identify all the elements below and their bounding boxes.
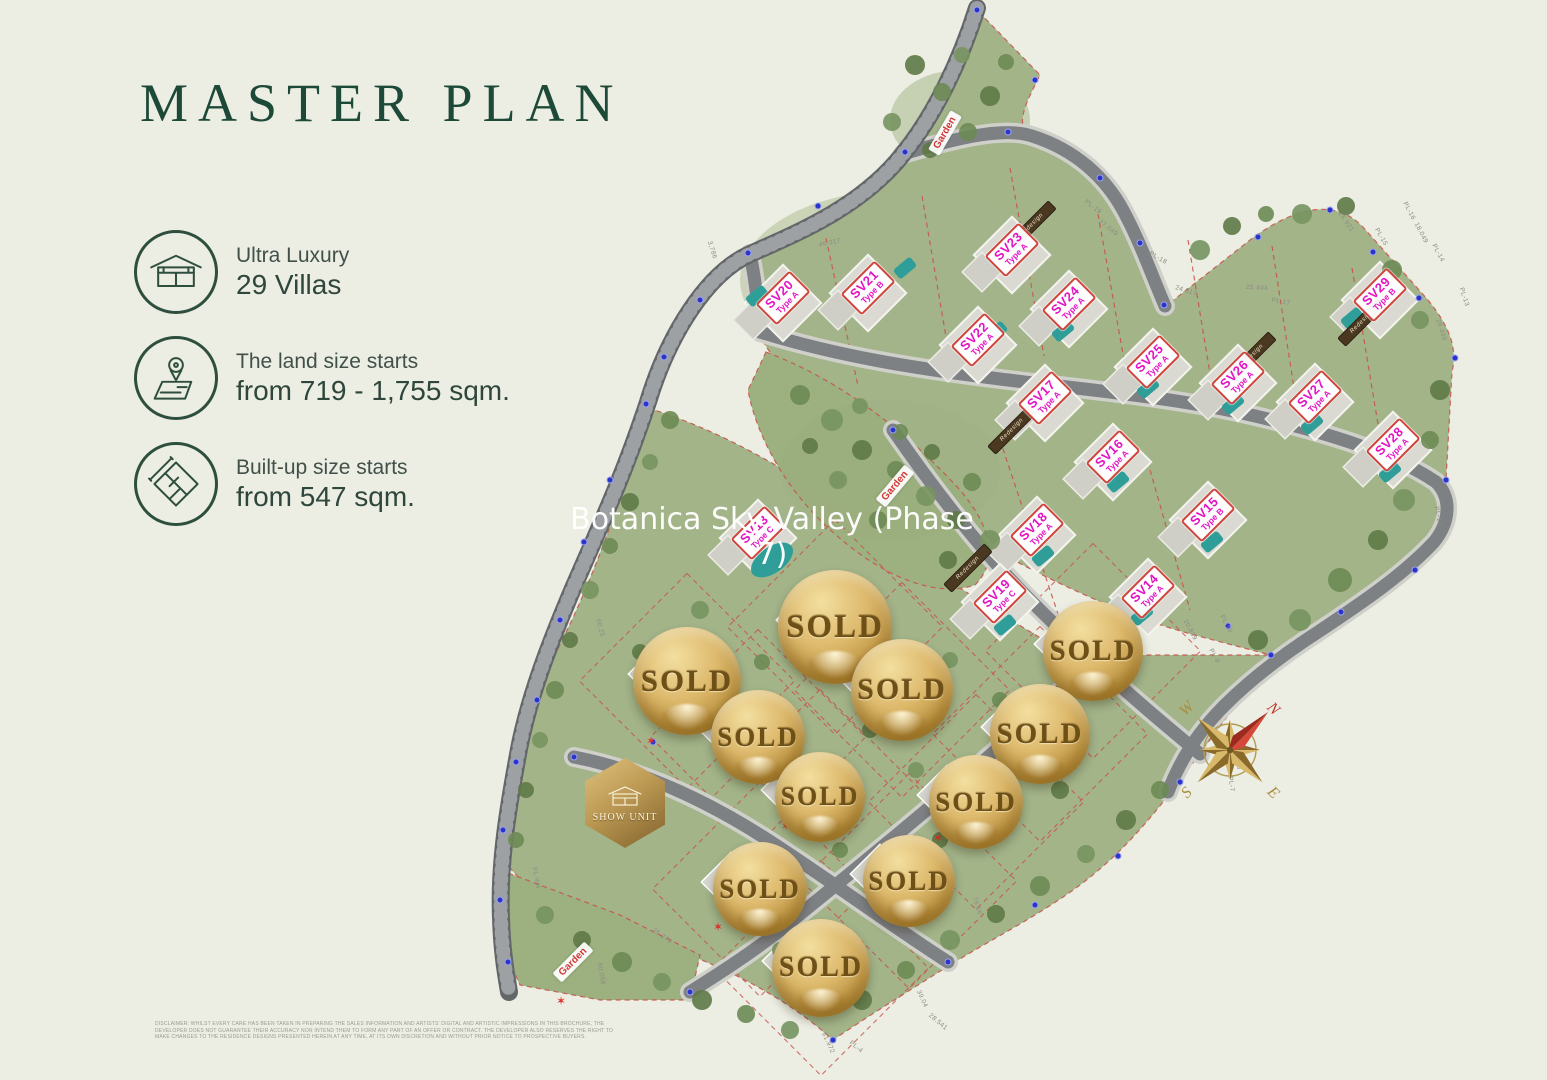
sold-label: SOLD: [779, 952, 863, 984]
survey-annotation: PL-9: [1207, 648, 1220, 665]
survey-annotation: 46.317: [818, 237, 841, 248]
sold-label: SOLD: [641, 663, 733, 699]
survey-annotation: 24.817: [1174, 284, 1197, 298]
survey-annotation: 3,786: [706, 240, 718, 260]
villa-label-sv15: SV15Type B: [1180, 487, 1235, 542]
survey-annotation: 28.541: [927, 1012, 949, 1032]
compass-label-e: E: [1263, 783, 1283, 803]
survey-annotation: PL-17: [1271, 297, 1291, 307]
survey-annotation: 39.04: [915, 989, 929, 1009]
villa-label-sv27: SV27Type A: [1287, 369, 1342, 424]
survey-annotation: 25.279: [651, 927, 673, 946]
sold-badge: SOLD: [713, 842, 807, 936]
sold-label: SOLD: [717, 722, 799, 753]
survey-annotation: PL-18: [1148, 250, 1168, 266]
masterplan-poster: ✶✶✶✶✶✶ RedesignRedesignRedesignRedesignR…: [0, 0, 1547, 1080]
survey-annotation: 18.049: [1413, 222, 1430, 245]
show-unit-label: SHOW UNIT: [593, 812, 658, 823]
survey-annotation: PL-10: [1218, 614, 1233, 634]
villa-label-sv18: SV18Type A: [1009, 502, 1064, 557]
sold-label: SOLD: [857, 673, 947, 707]
sold-badge: SOLD: [772, 919, 870, 1017]
villa-label-sv21: SV21Type B: [840, 260, 895, 315]
villa-label-sv24: SV24Type A: [1041, 276, 1096, 331]
survey-annotation: 76.56: [971, 896, 983, 916]
villa-label-sv16: SV16Type A: [1085, 429, 1140, 484]
compass-label-n: N: [1263, 698, 1284, 719]
survey-annotation: PL-13: [1458, 287, 1471, 308]
survey-annotation: 26.921: [1337, 211, 1356, 233]
disclaimer-text: DISCLAIMER: WHILST EVERY CARE HAS BEEN T…: [155, 1021, 625, 1041]
sold-label: SOLD: [1050, 635, 1137, 668]
survey-annotation: PL-16: [1401, 201, 1416, 221]
survey-annotation: 20.839: [1182, 619, 1199, 642]
show-unit-house-icon: [605, 783, 645, 809]
sold-badge: SOLD: [863, 835, 955, 927]
villa-label-sv25: SV25Type A: [1125, 334, 1180, 389]
sold-label: SOLD: [935, 787, 1017, 818]
villa-label-sv28: SV28Type A: [1365, 417, 1420, 472]
sold-label: SOLD: [719, 874, 801, 905]
compass-label-w: W: [1176, 697, 1199, 720]
survey-annotation: 61.972: [820, 1031, 836, 1054]
sold-badge: SOLD: [929, 755, 1023, 849]
survey-annotation: 29.439: [1434, 318, 1448, 341]
watermark: Botanica Sky Valley (Phase 7): [552, 502, 992, 572]
garden-label: Garden: [876, 465, 915, 508]
compass-label-s: S: [1178, 784, 1196, 802]
survey-annotation: PL-15: [1373, 227, 1389, 247]
sold-badge: SOLD: [1043, 601, 1143, 701]
villa-label-sv19: SV19Type C: [972, 569, 1027, 624]
garden-label: Garden: [928, 110, 962, 155]
watermark-line1: Botanica Sky Valley (Phase: [570, 502, 974, 537]
show-unit-marker: SHOW UNIT: [585, 758, 665, 848]
sold-label: SOLD: [868, 866, 950, 897]
survey-annotation: PL-W4: [531, 867, 542, 890]
survey-annotation: PL-4: [848, 1039, 864, 1054]
compass-rose: N W S E: [1164, 680, 1296, 816]
sold-badge: SOLD: [851, 639, 953, 741]
survey-annotation: 60.25: [594, 618, 605, 637]
survey-annotation: PL-12: [1433, 506, 1444, 526]
sold-label: SOLD: [997, 718, 1084, 751]
villa-label-sv20: SV20Type A: [755, 270, 810, 325]
villa-label-sv14: SV14Type A: [1120, 564, 1175, 619]
survey-annotation: 60.058: [596, 962, 607, 985]
survey-annotation: PL-14: [1430, 243, 1445, 263]
garden-label: Garden: [552, 941, 593, 982]
survey-annotation: 27.049: [1097, 218, 1119, 237]
survey-annotation: PL-19: [1083, 198, 1103, 215]
sold-label: SOLD: [781, 782, 860, 812]
sold-label: SOLD: [786, 609, 884, 646]
villa-label-sv22: SV22Type A: [950, 312, 1005, 367]
watermark-line2: 7): [757, 537, 788, 572]
survey-annotation: 25.494: [1246, 284, 1269, 293]
sold-badge: SOLD: [775, 752, 865, 842]
